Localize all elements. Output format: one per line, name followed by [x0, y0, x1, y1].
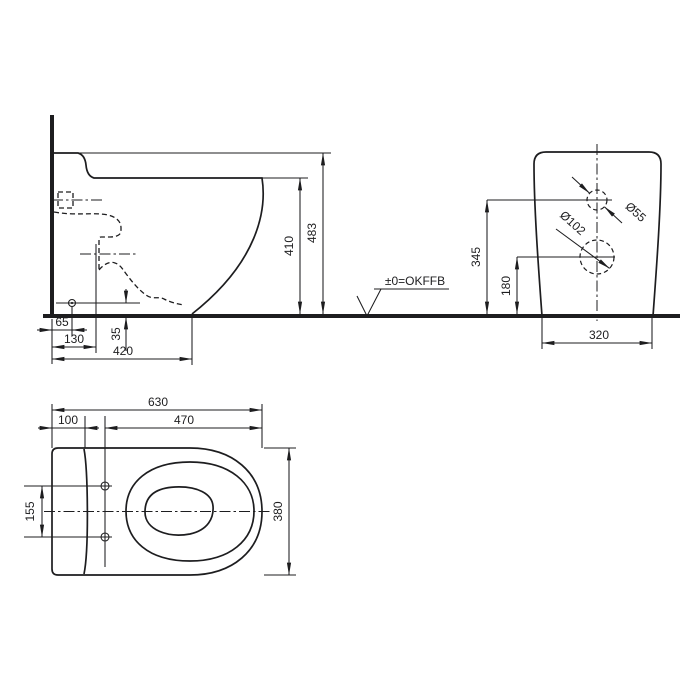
- bolt-holes: [24, 416, 112, 567]
- trapway-outlet-hidden-outline: [99, 262, 184, 305]
- dim-rear-section: 100: [58, 413, 78, 427]
- dim-total-length: 630: [148, 395, 168, 409]
- toilet-dimension-drawing: 483 410 65 130 420 35 ±0=OKFFB: [0, 0, 700, 700]
- side-dimensions: 483 410 65 130 420 35: [37, 153, 323, 359]
- plan-view: 630 100 470 155 380: [23, 395, 296, 575]
- structure-lines: [43, 115, 680, 318]
- dim-base-width: 320: [589, 328, 609, 342]
- dim-outlet-height: 35: [109, 327, 123, 341]
- dim-total-height: 483: [305, 223, 319, 243]
- level-check-mark: [357, 289, 381, 316]
- trapway-hidden-outline: [54, 212, 121, 270]
- side-body-outline: [54, 153, 263, 314]
- dim-trap-wall-offset: 130: [64, 332, 84, 346]
- rear-view: Ø55 Ø102 345 180 320: [469, 144, 661, 349]
- dim-depth: 420: [113, 344, 133, 358]
- floor-level-symbol: ±0=OKFFB: [357, 274, 449, 316]
- dim-rim-height: 410: [282, 236, 296, 256]
- dim-outlet-wall-offset: 65: [55, 315, 69, 329]
- dim-total-width: 380: [271, 501, 285, 521]
- callout-supply-diameter: Ø55: [623, 199, 649, 225]
- dim-bolt-to-front: 470: [174, 413, 194, 427]
- dim-supply-height: 345: [469, 247, 483, 267]
- plan-dimensions: 630 100 470 155 380: [23, 395, 289, 575]
- bowl-opening: [145, 487, 213, 535]
- side-view: 483 410 65 130 420 35: [37, 153, 331, 365]
- dim-outlet-center-height: 180: [499, 276, 513, 296]
- dim-bolt-spacing: 155: [23, 501, 37, 521]
- rear-dimensions: 345 180 320: [469, 200, 652, 349]
- technical-drawing-page: 483 410 65 130 420 35 ±0=OKFFB: [0, 0, 700, 700]
- floor-level-label: ±0=OKFFB: [385, 274, 445, 288]
- side-hidden-lines: [52, 192, 184, 307]
